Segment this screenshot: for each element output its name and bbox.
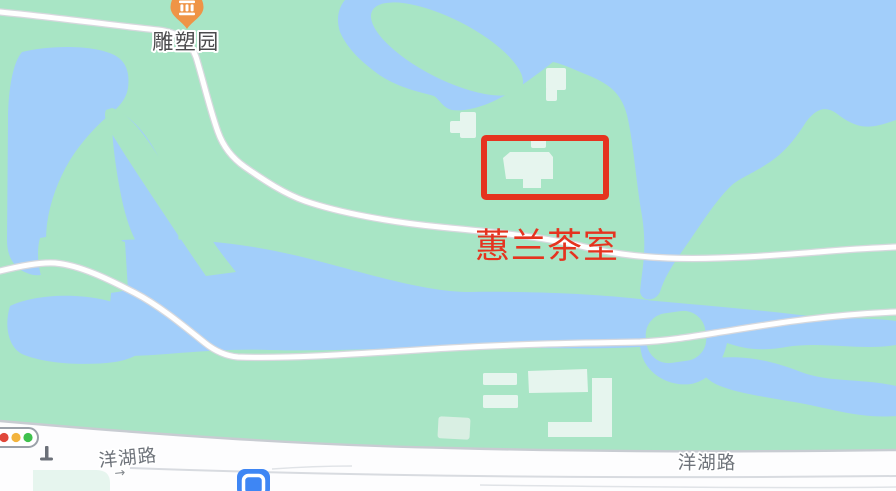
- building-footprint: [546, 68, 566, 90]
- building-footprint: [450, 121, 463, 133]
- building-footprint: [546, 88, 557, 101]
- shore-patch: [437, 416, 470, 440]
- building-footprint: [528, 369, 588, 393]
- building-footprint: [483, 373, 517, 385]
- building-footprint: [483, 395, 518, 408]
- museum-glyph: [179, 1, 195, 16]
- building-footprint: [33, 470, 110, 491]
- direction-arrow: →: [114, 465, 127, 481]
- map-canvas[interactable]: 洋湖路 → 洋湖路 雕塑园 蕙兰茶室: [0, 0, 896, 491]
- poi-label[interactable]: 雕塑园: [152, 30, 220, 54]
- annotation-label: 蕙兰茶室: [475, 227, 619, 267]
- road-label-yanghu-right: 洋湖路: [678, 453, 737, 474]
